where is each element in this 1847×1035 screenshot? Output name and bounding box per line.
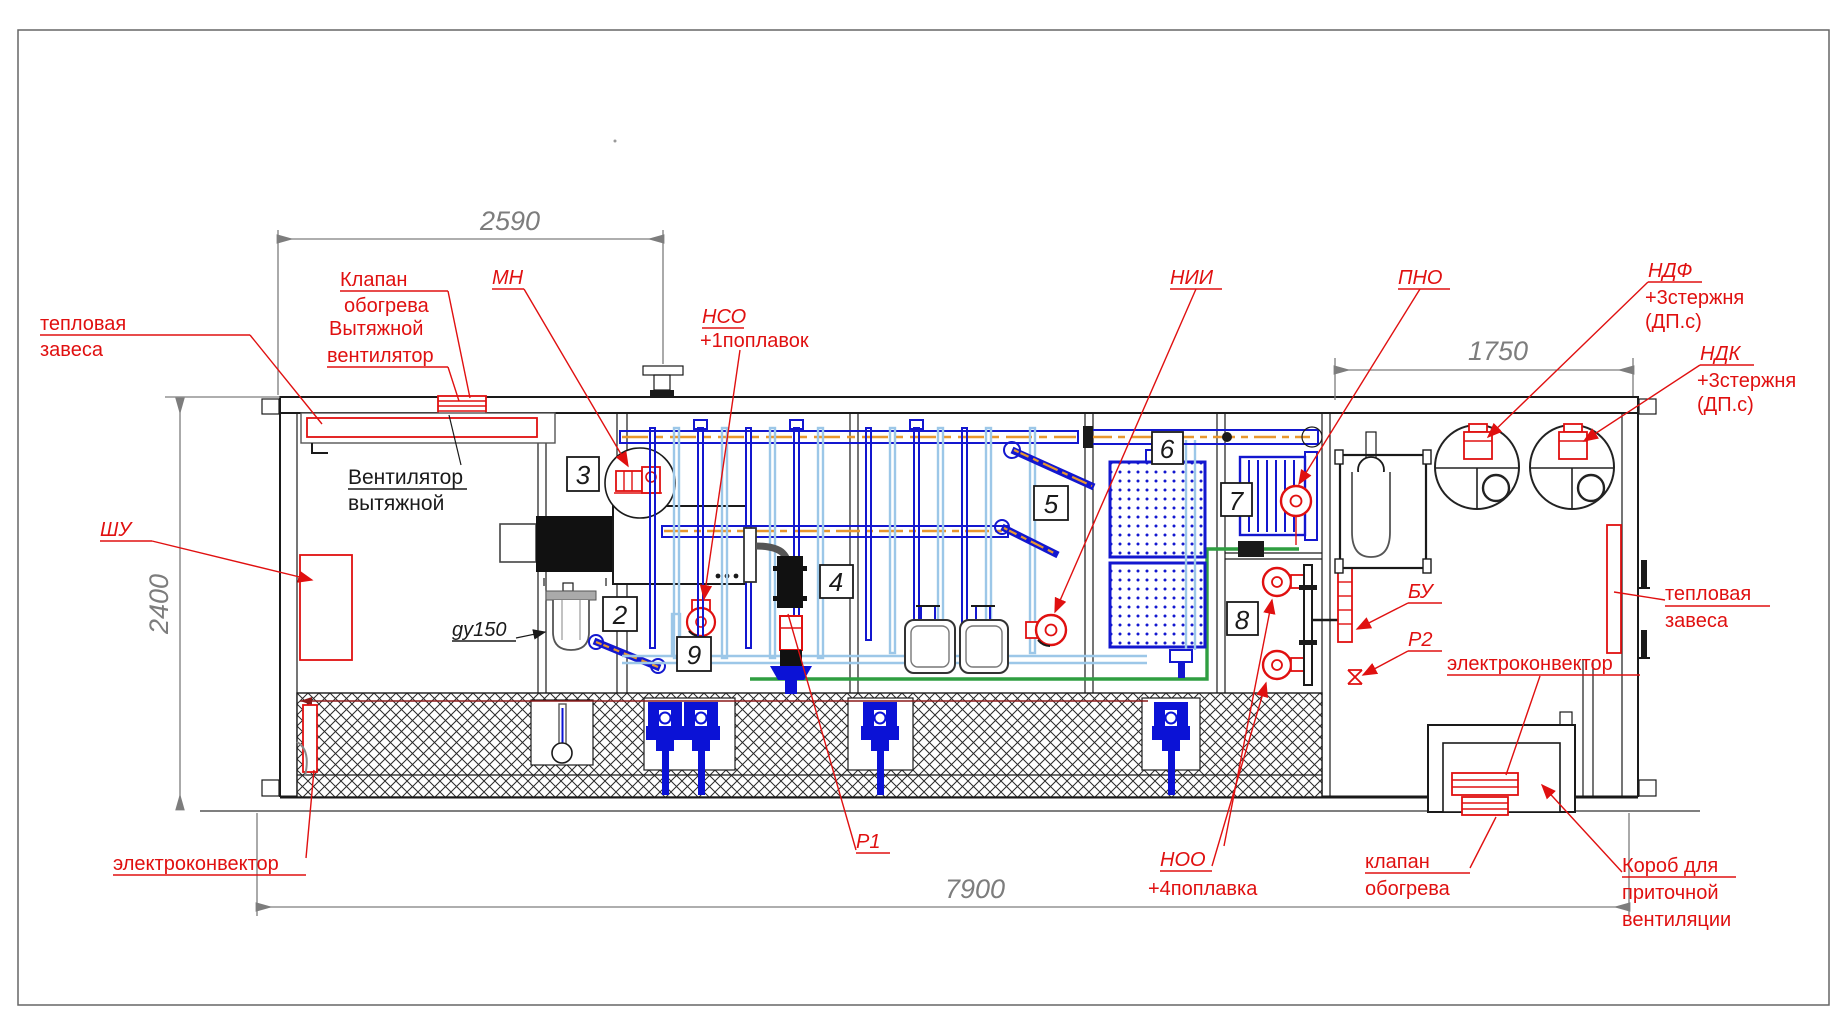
drawing-canvas: 3 2 9 4 5 6 7 8 2590 1750 2400 7900 тепл…: [0, 0, 1847, 1035]
right-electroconvector: [1428, 712, 1575, 815]
pos-4: 4: [829, 567, 843, 597]
label-ndf-note2: (ДП.с): [1645, 311, 1702, 333]
label-heating-valve-top-1: Клапан: [340, 269, 407, 291]
pos-5: 5: [1044, 489, 1059, 519]
shu-cabinet: [300, 555, 352, 660]
ndk-dosing-pump: [1559, 424, 1587, 459]
label-thermal-curtain-left-2: завеса: [40, 339, 104, 361]
pos-7: 7: [1229, 486, 1245, 516]
label-du150: gy150: [452, 619, 507, 641]
dim-top-width: 2590: [479, 206, 540, 236]
label-r2: Р2: [1408, 629, 1432, 651]
label-convector-right: электроконвектор: [1447, 653, 1613, 675]
label-mn: МН: [492, 267, 524, 289]
sheet-border: [18, 30, 1829, 1005]
left-electroconvector: [303, 705, 317, 772]
label-exhaust-fan-black-2: вытяжной: [348, 492, 444, 515]
label-ndf: НДФ: [1648, 260, 1693, 282]
label-shu: ШУ: [100, 519, 133, 541]
transfer-pipe: [1083, 426, 1322, 448]
label-heating-valve-bottom-1: клапан: [1365, 851, 1430, 873]
pos-8: 8: [1235, 605, 1250, 635]
label-nso: НСО: [702, 306, 746, 328]
label-bu: БУ: [1408, 581, 1435, 603]
ndf-dosing-pump: [1464, 424, 1492, 459]
label-r1: Р1: [856, 831, 880, 853]
bu-device: [1338, 568, 1352, 642]
label-duct-1: Короб для: [1622, 855, 1718, 877]
pos-6: 6: [1160, 434, 1175, 464]
label-heating-valve-bottom-2: обогрева: [1365, 878, 1451, 900]
bottom-heating-valve-unit: [1452, 773, 1518, 815]
dim-right-width: 1750: [1468, 336, 1528, 366]
label-pno: ПНО: [1398, 267, 1443, 289]
label-heating-valve-top-2: обогрева: [344, 295, 430, 317]
label-exhaust-fan-red-2: вентилятор: [327, 345, 434, 367]
label-thermal-curtain-right-2: завеса: [1665, 610, 1729, 632]
label-noo-note: +4поплавка: [1148, 878, 1258, 900]
label-thermal-curtain-right-1: тепловая: [1665, 583, 1751, 605]
label-ndf-note1: +3стержня: [1645, 287, 1744, 309]
label-nso-note: +1поплавок: [700, 330, 809, 352]
label-thermal-curtain-left-1: тепловая: [40, 313, 126, 335]
dim-height: 2400: [144, 574, 174, 635]
label-ndk-note2: (ДП.с): [1697, 394, 1754, 416]
label-ndk: НДК: [1700, 343, 1742, 365]
mn-pump-assembly: [605, 448, 675, 518]
pos-9: 9: [687, 640, 701, 670]
label-nii: НИИ: [1170, 267, 1214, 289]
label-convector-left: электроконвектор: [113, 853, 279, 875]
label-exhaust-fan-red-1: Вытяжной: [329, 318, 423, 340]
label-noo: НОО: [1160, 849, 1206, 871]
pos-2: 2: [612, 600, 628, 630]
artifact-dot: [614, 140, 617, 143]
label-duct-3: вентиляции: [1622, 909, 1731, 931]
label-exhaust-fan-black-1: Вентилятор: [348, 466, 463, 489]
label-duct-2: приточной: [1622, 882, 1719, 904]
underfloor-zone: [297, 693, 1322, 797]
thermal-curtain-right-unit: [1607, 525, 1621, 653]
pos-3: 3: [576, 460, 591, 490]
label-ndk-note1: +3стержня: [1697, 370, 1796, 392]
thermal-curtain-left-unit: [307, 418, 537, 437]
dim-total-length: 7900: [945, 874, 1005, 904]
